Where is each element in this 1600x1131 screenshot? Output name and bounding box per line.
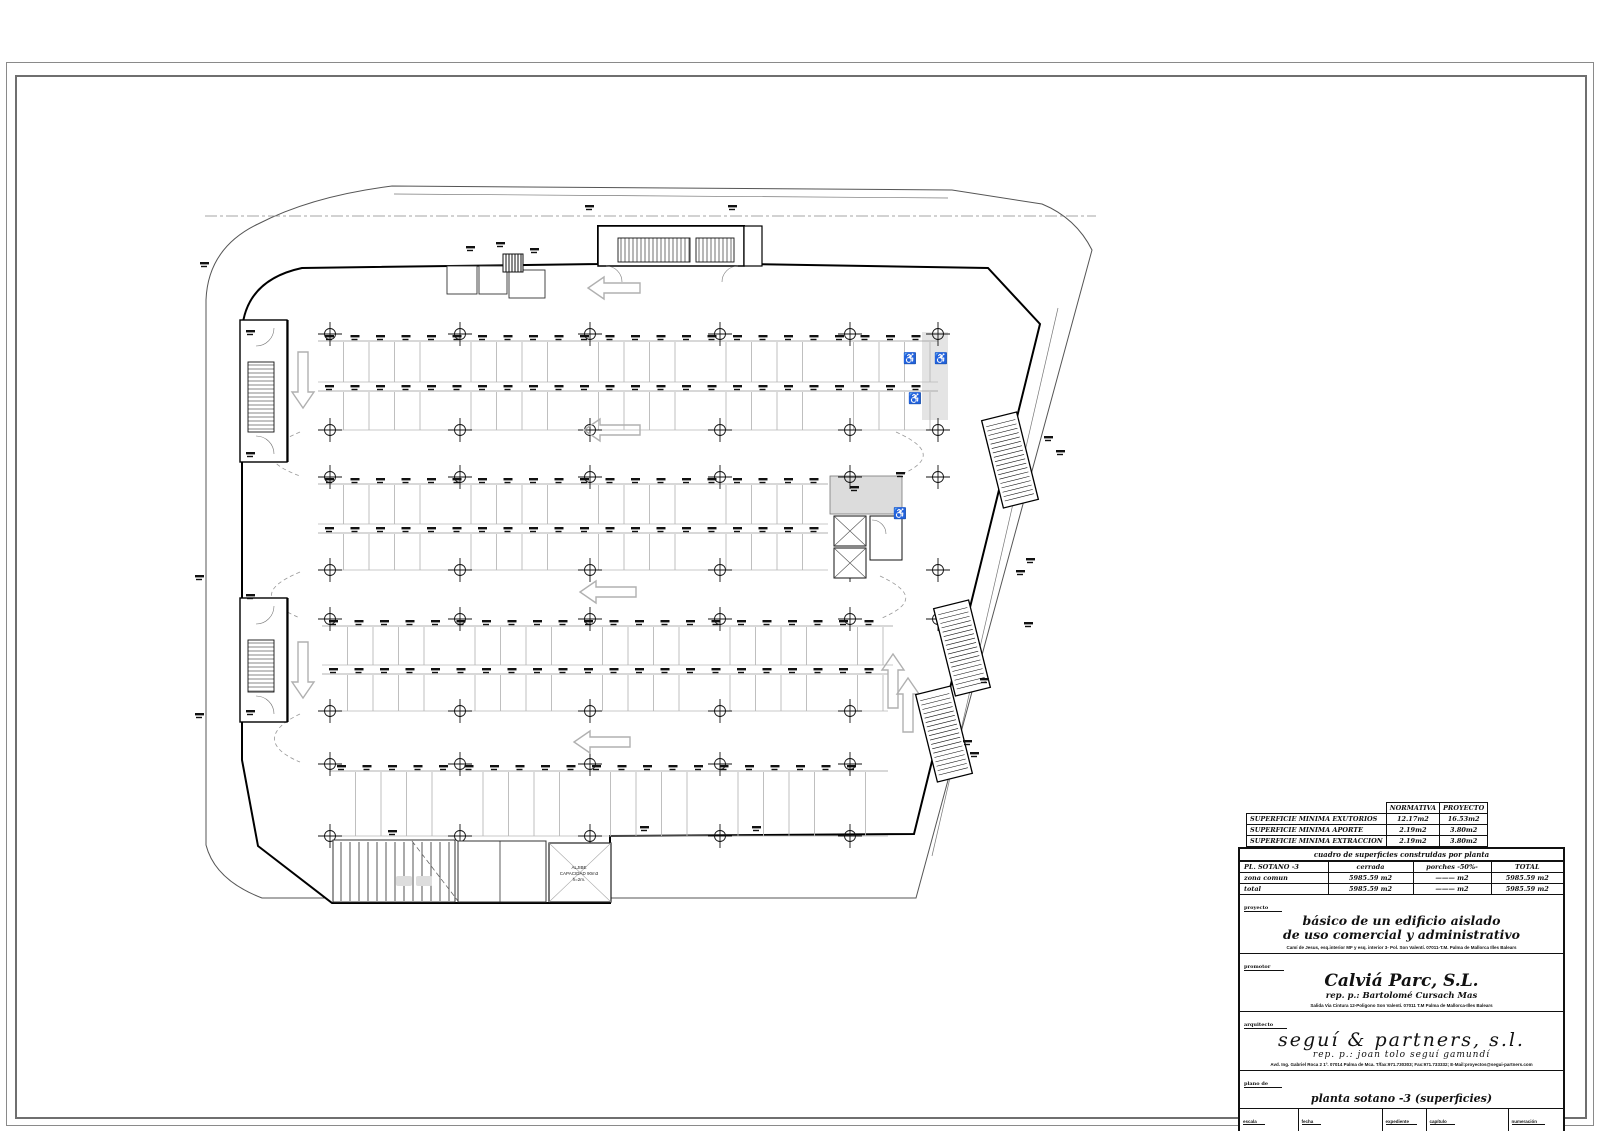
stall-label-mark <box>505 531 511 532</box>
stall-label-mark <box>380 668 389 670</box>
stall-label-mark <box>402 478 411 480</box>
stall-label-mark <box>607 339 613 340</box>
stall-label-mark <box>376 527 385 529</box>
ramp-marking <box>416 876 432 886</box>
stall-label-mark <box>330 672 336 673</box>
stall-label-mark <box>641 830 647 831</box>
stall-label-mark <box>196 579 202 580</box>
stall-label-mark <box>611 624 617 625</box>
stall-label-mark <box>759 527 768 529</box>
stall-label-mark <box>403 482 409 483</box>
lift-lobby <box>830 476 902 514</box>
stall-label-mark <box>661 620 670 622</box>
stall-label-mark <box>658 531 664 532</box>
stall-label-mark <box>785 339 791 340</box>
stall-label-mark <box>482 620 491 622</box>
stall-label-mark <box>814 620 823 622</box>
stall-label-mark <box>733 478 742 480</box>
wheelchair-icon: ♿ <box>908 392 922 405</box>
scale-label: escala <box>1243 1119 1265 1125</box>
stall-label-mark <box>1045 440 1051 441</box>
col-header-proyecto: PROYECTO <box>1440 803 1488 814</box>
stall-label-mark <box>555 478 564 480</box>
stall-label-mark <box>658 389 664 390</box>
stall-label-mark <box>403 389 409 390</box>
stall-label-mark <box>200 262 209 264</box>
stall-label-mark <box>325 335 334 337</box>
stall-label-mark <box>866 672 872 673</box>
stall-label-mark <box>661 668 670 670</box>
stall-label-mark <box>559 620 568 622</box>
stall-label-mark <box>247 598 253 599</box>
utility-room <box>447 266 477 294</box>
stall-label-mark <box>377 389 383 390</box>
stall-label-mark <box>454 531 460 532</box>
stall-label-mark <box>912 385 921 387</box>
stall-label-mark <box>657 335 666 337</box>
stall-label-mark <box>407 672 413 673</box>
stall-label-mark <box>402 335 411 337</box>
aljibe-label-line1: ALJIBE <box>571 865 586 870</box>
stall-label-mark <box>784 478 793 480</box>
stall-label-mark <box>406 668 415 670</box>
stall-label-mark <box>530 531 536 532</box>
stall-label-mark <box>606 527 615 529</box>
stall-label-mark <box>195 713 204 715</box>
stall-label-mark <box>683 482 689 483</box>
date-label: fecha <box>1302 1119 1322 1125</box>
stall-label-mark <box>504 527 513 529</box>
drawing-sheet: ♿♿♿♿ ALJIBE CAPACIDAD 90m3 h=2m. NORMATI… <box>0 0 1600 1131</box>
project-section: proyecto básico de un edificio aislado d… <box>1240 895 1563 953</box>
stall-label-mark <box>796 765 805 767</box>
stall-label-mark <box>427 527 436 529</box>
stall-label-mark <box>530 389 536 390</box>
stall-label-mark <box>1026 558 1035 560</box>
stall-label-mark <box>355 620 364 622</box>
stall-label-mark <box>606 478 615 480</box>
stall-label-mark <box>836 339 842 340</box>
stall-label-mark <box>760 389 766 390</box>
stall-label-mark <box>428 531 434 532</box>
stall-label-mark <box>657 478 666 480</box>
stall-label-mark <box>531 252 537 253</box>
stall-label-mark <box>686 620 695 622</box>
title-block-main: cuadro de superficies construidas por pl… <box>1238 847 1565 1131</box>
stall-label-mark <box>618 765 627 767</box>
stall-label-mark <box>380 620 389 622</box>
stall-label-mark <box>759 335 768 337</box>
stall-label-mark <box>733 385 742 387</box>
stall-label-mark <box>457 668 466 670</box>
stall-label-mark <box>683 531 689 532</box>
stall-label-mark <box>1016 570 1025 572</box>
stall-label-mark <box>695 769 701 770</box>
project-section-label: proyecto <box>1244 905 1282 912</box>
stall-label-mark <box>772 769 778 770</box>
stall-label-mark <box>810 527 819 529</box>
stall-label-mark <box>865 668 874 670</box>
areas-table: PL. SOTANO -3 cerrada porches -50%- TOTA… <box>1240 861 1563 895</box>
stall-label-mark <box>635 620 644 622</box>
stall-label-mark <box>835 385 844 387</box>
stall-label-mark <box>657 527 666 529</box>
stall-label-mark <box>635 668 644 670</box>
shaft-zone <box>922 332 948 420</box>
stall-label-mark <box>980 678 989 680</box>
stall-label-mark <box>559 668 568 670</box>
promoter-representative: rep. p.: Bartolomé Cursach Mas <box>1244 991 1559 1001</box>
stall-label-mark <box>246 594 255 596</box>
stall-label-mark <box>483 672 489 673</box>
stall-label-mark <box>669 765 678 767</box>
stall-label-mark <box>1025 626 1031 627</box>
stall-label-mark <box>964 744 970 745</box>
stall-label-mark <box>662 672 668 673</box>
stall-label-mark <box>734 339 740 340</box>
stall-label-mark <box>351 527 360 529</box>
stall-label-mark <box>631 478 640 480</box>
stall-label-mark <box>482 668 491 670</box>
stall-label-mark <box>913 389 919 390</box>
stall-label-mark <box>708 527 717 529</box>
stall-label-mark <box>377 531 383 532</box>
stall-label-mark <box>325 527 334 529</box>
stall-label-mark <box>839 668 848 670</box>
stall-label-mark <box>866 624 872 625</box>
stall-label-mark <box>970 752 979 754</box>
stall-label-mark <box>709 339 715 340</box>
stall-label-mark <box>247 456 253 457</box>
stall-label-mark <box>811 531 817 532</box>
stall-label-mark <box>753 830 759 831</box>
stall-label-mark <box>593 769 599 770</box>
stall-label-mark <box>720 765 729 767</box>
stall-label-mark <box>567 765 576 767</box>
project-address: Camí de Jesus, esq.interior MF y esq. in… <box>1244 945 1559 950</box>
stall-label-mark <box>708 385 717 387</box>
stall-label-mark <box>508 620 517 622</box>
stall-label-mark <box>632 389 638 390</box>
stall-label-mark <box>709 482 715 483</box>
project-title-line1: básico de un edificio aislado <box>1244 914 1559 928</box>
stall-label-mark <box>363 765 372 767</box>
stall-label-mark <box>556 531 562 532</box>
stall-label-mark <box>619 769 625 770</box>
stall-label-mark <box>1044 436 1053 438</box>
stall-label-mark <box>764 672 770 673</box>
stall-label-mark <box>556 482 562 483</box>
stall-label-mark <box>811 389 817 390</box>
stall-label-mark <box>496 242 505 244</box>
stall-label-mark <box>439 765 448 767</box>
table-row: SUPERFICIE MINIMA APORTE 2.19m2 3.80m2 <box>1247 825 1488 836</box>
promoter-name: Calviá Parc, S.L. <box>1244 973 1559 991</box>
stall-label-mark <box>851 490 857 491</box>
stall-label-mark <box>556 389 562 390</box>
stall-label-mark <box>896 472 905 474</box>
stall-label-mark <box>530 339 536 340</box>
stall-label-mark <box>789 672 795 673</box>
stall-label-mark <box>611 672 617 673</box>
stall-label-mark <box>784 527 793 529</box>
stall-label-mark <box>789 624 795 625</box>
stall-label-mark <box>517 769 523 770</box>
stall-label-mark <box>467 250 473 251</box>
stall-label-mark <box>389 769 395 770</box>
stall-label-mark <box>376 335 385 337</box>
stall-label-mark <box>737 668 746 670</box>
stall-label-mark <box>682 478 691 480</box>
stall-label-mark <box>759 478 768 480</box>
stall-label-mark <box>897 476 903 477</box>
stall-label-mark <box>840 624 846 625</box>
stall-label-mark <box>246 710 255 712</box>
stall-label-mark <box>764 624 770 625</box>
stall-label-mark <box>797 769 803 770</box>
stall-label-mark <box>337 765 346 767</box>
stall-label-mark <box>431 620 440 622</box>
stall-label-mark <box>687 624 693 625</box>
stall-label-mark <box>478 478 487 480</box>
col-header-normativa: NORMATIVA <box>1386 803 1439 814</box>
stall-label-mark <box>712 668 721 670</box>
stall-label-mark <box>326 531 332 532</box>
stall-label-mark <box>788 668 797 670</box>
stall-label-mark <box>356 672 362 673</box>
stall-label-mark <box>428 339 434 340</box>
stall-label-mark <box>530 248 539 250</box>
stall-label-mark <box>1057 454 1063 455</box>
chapter-label: capítulo <box>1430 1119 1455 1125</box>
sheet-name: planta sotano -3 (superficies) <box>1244 1090 1559 1108</box>
stall-label-mark <box>733 527 742 529</box>
stall-label-mark <box>407 624 413 625</box>
stall-label-mark <box>631 335 640 337</box>
stall-label-mark <box>530 482 536 483</box>
stall-label-mark <box>376 478 385 480</box>
stall-label-mark <box>505 482 511 483</box>
stall-label-mark <box>555 385 564 387</box>
stall-label-mark <box>785 389 791 390</box>
stall-label-mark <box>713 672 719 673</box>
stall-label-mark <box>644 769 650 770</box>
stall-label-mark <box>733 335 742 337</box>
stall-label-mark <box>840 672 846 673</box>
stall-label-mark <box>738 624 744 625</box>
stall-label-mark <box>745 765 754 767</box>
stall-label-mark <box>402 385 411 387</box>
stall-label-mark <box>712 620 721 622</box>
stall-label-mark <box>734 389 740 390</box>
stall-label-mark <box>478 335 487 337</box>
stall-label-mark <box>610 668 619 670</box>
stall-label-mark <box>381 624 387 625</box>
stall-label-mark <box>377 482 383 483</box>
stall-label-mark <box>427 478 436 480</box>
stall-label-mark <box>785 531 791 532</box>
file-number-label: expediente <box>1386 1119 1418 1125</box>
stall-label-mark <box>683 389 689 390</box>
stall-label-mark <box>325 478 334 480</box>
wheelchair-icon: ♿ <box>893 507 907 520</box>
stall-label-mark <box>913 339 919 340</box>
stall-label-mark <box>581 531 587 532</box>
architect-name: seguí & partners, s.l. <box>1244 1031 1559 1050</box>
stall-label-mark <box>694 765 703 767</box>
stall-label-mark <box>658 339 664 340</box>
stall-label-mark <box>534 672 540 673</box>
stall-label-mark <box>607 482 613 483</box>
stall-label-mark <box>640 826 649 828</box>
stall-label-mark <box>581 482 587 483</box>
stall-label-mark <box>585 672 591 673</box>
stall-label-mark <box>886 385 895 387</box>
stall-label-mark <box>814 668 823 670</box>
stair-flight <box>248 640 274 692</box>
stall-label-mark <box>631 527 640 529</box>
stall-label-mark <box>533 620 542 622</box>
stall-label-mark <box>737 620 746 622</box>
stall-label-mark <box>351 335 360 337</box>
machine-room <box>870 516 902 560</box>
stall-label-mark <box>516 765 525 767</box>
stall-label-mark <box>509 624 515 625</box>
stall-label-mark <box>329 668 338 670</box>
stall-label-mark <box>760 531 766 532</box>
stall-label-mark <box>682 335 691 337</box>
areas-table-caption: cuadro de superficies construidas por pl… <box>1240 849 1563 861</box>
stall-label-mark <box>427 385 436 387</box>
stall-label-mark <box>580 385 589 387</box>
stall-label-mark <box>402 527 411 529</box>
stall-label-mark <box>670 769 676 770</box>
stall-label-mark <box>606 335 615 337</box>
stall-label-mark <box>784 385 793 387</box>
table-row: escala 1/200 fecha 25 JULIO 05 expedient… <box>1240 1108 1563 1131</box>
stall-label-mark <box>389 834 395 835</box>
stall-label-mark <box>568 769 574 770</box>
stall-label-mark <box>431 668 440 670</box>
stall-label-mark <box>529 478 538 480</box>
stall-label-mark <box>763 620 772 622</box>
stall-label-mark <box>823 769 829 770</box>
stall-label-mark <box>912 335 921 337</box>
stall-label-mark <box>815 624 821 625</box>
storage-room <box>458 841 546 902</box>
stall-label-mark <box>811 482 817 483</box>
stall-label-mark <box>763 668 772 670</box>
stall-label-mark <box>351 385 360 387</box>
stall-label-mark <box>432 624 438 625</box>
stall-label-mark <box>505 339 511 340</box>
stall-label-mark <box>682 527 691 529</box>
stall-label-mark <box>636 672 642 673</box>
stall-label-mark <box>752 826 761 828</box>
stall-label-mark <box>610 620 619 622</box>
entrance-shaft <box>744 226 762 266</box>
stall-label-mark <box>810 335 819 337</box>
stall-label-mark <box>636 624 642 625</box>
stall-label-mark <box>508 668 517 670</box>
ramp-marking <box>396 876 412 886</box>
stall-label-mark <box>810 385 819 387</box>
stall-label-mark <box>683 339 689 340</box>
table-row: zona comun 5985.59 m2 ——— m2 5985.59 m2 <box>1240 873 1563 884</box>
stall-label-mark <box>376 385 385 387</box>
project-title-line2: de uso comercial y administrativo <box>1244 928 1559 942</box>
wheelchair-icon: ♿ <box>934 352 948 365</box>
site-boundary-inner-line <box>394 194 948 198</box>
architect-contact: Avd. Ing. Gabriel Roca 2 1º. 07014 Palma… <box>1244 1062 1559 1067</box>
stall-label-mark <box>580 527 589 529</box>
stall-label-mark <box>771 765 780 767</box>
stall-label-mark <box>1017 574 1023 575</box>
stall-label-mark <box>836 389 842 390</box>
title-block: NORMATIVA PROYECTO SUPERFICIE MINIMA EXU… <box>1238 802 1565 1131</box>
architect-section-label: arquitecto <box>1244 1022 1287 1029</box>
stall-label-mark <box>427 335 436 337</box>
stall-label-mark <box>585 205 594 207</box>
stall-label-mark <box>738 672 744 673</box>
vehicle-ramp <box>333 840 455 902</box>
stall-label-mark <box>326 389 332 390</box>
stall-label-mark <box>1024 622 1033 624</box>
promoter-section: promotor Calviá Parc, S.L. rep. p.: Bart… <box>1240 953 1563 1011</box>
stall-label-mark <box>381 672 387 673</box>
stall-label-mark <box>466 769 472 770</box>
stall-label-mark <box>632 531 638 532</box>
stall-label-mark <box>886 335 895 337</box>
stall-label-mark <box>406 620 415 622</box>
utility-room <box>509 270 545 298</box>
stall-label-mark <box>246 330 255 332</box>
stall-label-mark <box>338 769 344 770</box>
aljibe-label-line2: CAPACIDAD 90m3 <box>560 871 599 876</box>
stall-label-mark <box>709 531 715 532</box>
sheet-name-label: plano de <box>1244 1081 1282 1088</box>
stall-label-mark <box>682 385 691 387</box>
stall-label-mark <box>440 769 446 770</box>
stall-label-mark <box>533 668 542 670</box>
stall-label-mark <box>584 668 593 670</box>
stall-label-mark <box>785 482 791 483</box>
stall-label-mark <box>981 682 987 683</box>
stall-label-mark <box>509 672 515 673</box>
stall-label-mark <box>377 339 383 340</box>
stall-label-mark <box>352 389 358 390</box>
stall-label-mark <box>246 452 255 454</box>
stall-label-mark <box>504 478 513 480</box>
stall-label-mark <box>478 527 487 529</box>
stall-label-mark <box>862 389 868 390</box>
stall-label-mark <box>686 668 695 670</box>
stall-label-mark <box>839 620 848 622</box>
stall-label-mark <box>607 389 613 390</box>
stall-label-mark <box>709 389 715 390</box>
stall-label-mark <box>247 334 253 335</box>
stall-label-mark <box>861 335 870 337</box>
stall-label-mark <box>815 672 821 673</box>
stall-label-mark <box>541 765 550 767</box>
stall-label-mark <box>861 385 870 387</box>
stall-label-mark <box>581 339 587 340</box>
stall-label-mark <box>504 385 513 387</box>
stall-label-mark <box>428 482 434 483</box>
stall-label-mark <box>788 620 797 622</box>
stall-label-mark <box>388 765 397 767</box>
stall-label-mark <box>643 765 652 767</box>
